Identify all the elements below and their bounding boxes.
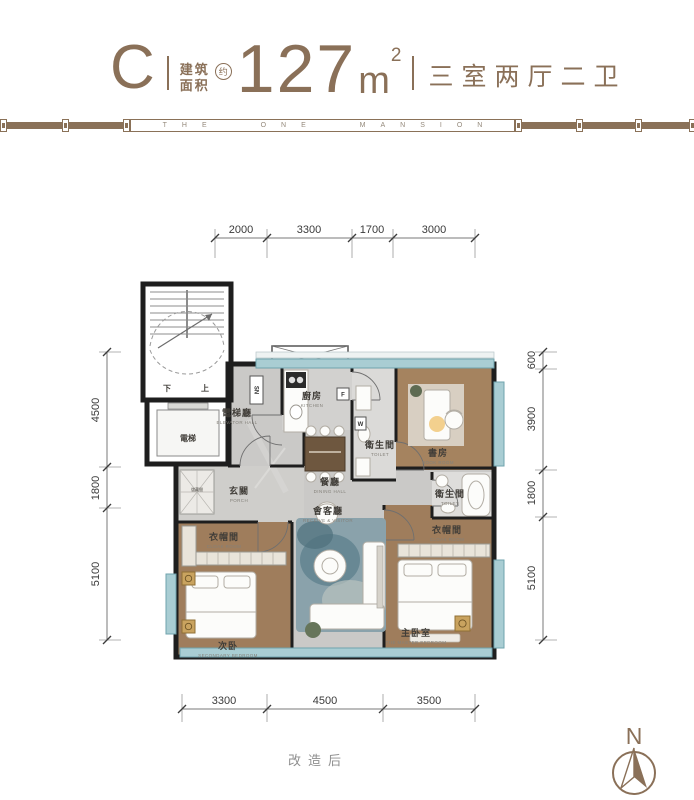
secondary-bed — [186, 572, 256, 638]
dimension-top: 2000 3300 1700 3000 — [211, 224, 479, 258]
label-bookroom: 書房 — [428, 447, 448, 458]
label-cloak-left: 衣帽間 — [209, 531, 239, 542]
label-kitchen-en: KITCHEN — [301, 403, 324, 408]
compass: N — [598, 720, 672, 800]
label-dining-en: DINING HALL — [314, 489, 347, 494]
label-toilet-master: 衛生間 — [434, 488, 465, 499]
window-sill-top — [256, 352, 494, 358]
dim-label: 1800 — [90, 476, 102, 500]
elevator-label: 電梯 — [180, 433, 196, 443]
cloak-right-wardrobe — [398, 544, 490, 557]
label-elevator-hall: 電梯廳 — [222, 407, 252, 418]
storage-closet — [180, 470, 214, 514]
toilet-fixtures — [356, 386, 371, 476]
dining-furniture — [305, 426, 345, 482]
dim-label: 5100 — [90, 562, 102, 586]
dimension-left: 4500 1800 5100 — [90, 348, 121, 644]
kitchen-fixtures — [284, 370, 308, 432]
dim-label: 3000 — [422, 224, 446, 236]
dim-label: 600 — [526, 351, 538, 369]
bay-window-right-lower — [494, 560, 504, 648]
stairwell: 下 上 — [143, 284, 231, 400]
label-toilet-master-en: TOILET — [441, 501, 459, 506]
dim-label: 3300 — [297, 224, 321, 236]
label-master-bedroom: 主卧室 — [401, 627, 431, 638]
floor-plan-svg: 下 上 電梯 — [0, 0, 694, 800]
dim-label: 4500 — [90, 398, 102, 422]
dim-label: 1700 — [360, 224, 384, 236]
bay-window-right-upper — [494, 382, 504, 466]
bookroom-furniture — [408, 384, 464, 446]
dim-label: 1800 — [526, 481, 538, 505]
label-porch-en: PORCH — [230, 498, 248, 503]
label-porch: 玄關 — [229, 485, 249, 496]
label-living: 會客廳 — [313, 505, 343, 516]
dimension-right: 600 3900 1800 5100 — [526, 348, 557, 644]
label-storage: 儲藏間 — [191, 486, 203, 492]
dim-label: 4500 — [313, 695, 337, 707]
dim-label: 3500 — [417, 695, 441, 707]
dim-label: 5100 — [526, 566, 538, 590]
dimension-bottom: 3300 4500 3500 — [178, 694, 479, 722]
marker-fridge: F — [341, 393, 345, 399]
label-cloak-left-en: CLOAK ROOM — [207, 544, 242, 549]
stair-up-label: 上 — [201, 383, 209, 393]
label-elevator-hall-en: ELEVATOR HALL — [217, 420, 258, 425]
label-master-bedroom-en: THE MASTER BEDROOM — [386, 640, 447, 645]
dim-label: 2000 — [229, 224, 253, 236]
label-secondary-bedroom: 次卧 — [218, 640, 238, 651]
marker-washer: W — [358, 422, 364, 428]
label-secondary-bedroom-en: SECONDARY BEDROOM — [198, 653, 258, 658]
compass-north-label: N — [626, 723, 643, 749]
label-toilet-center: 衛生間 — [364, 439, 395, 450]
label-cloak-right-en: CLOAK ROOM — [430, 537, 465, 542]
stair-down-label: 下 — [163, 384, 171, 393]
label-kitchen: 廚房 — [302, 390, 322, 401]
dim-label: 3300 — [212, 695, 236, 707]
marker-sn: SN — [253, 386, 259, 394]
bay-window-left — [166, 574, 176, 634]
elevator: 電梯 — [147, 400, 229, 464]
label-bookroom-en: BOOK ROOM — [422, 460, 454, 465]
window-top — [256, 359, 494, 368]
label-living-en: RECEIVE & VISITOR — [303, 518, 353, 523]
label-dining: 餐廳 — [319, 476, 340, 487]
floorplan-page: C 建筑 面积 约 127 m2 三室两厅二卫 THE ONE MANSION — [0, 0, 694, 800]
label-cloak-right: 衣帽間 — [432, 524, 462, 535]
renovation-note: 改造后 — [288, 750, 348, 769]
dim-label: 3900 — [526, 407, 538, 431]
label-toilet-center-en: TOILET — [371, 452, 389, 457]
